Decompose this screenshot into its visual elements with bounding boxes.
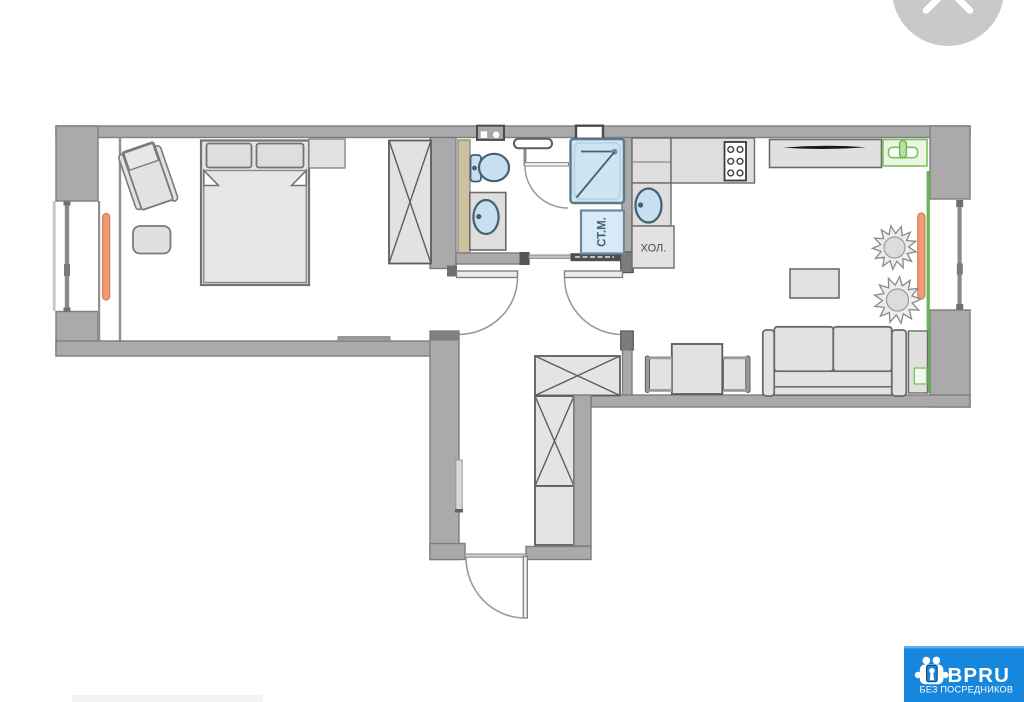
svg-text:ХОЛ.: ХОЛ. <box>641 243 667 255</box>
svg-text:БЕЗ ПОСРЕДНИКОВ: БЕЗ ПОСРЕДНИКОВ <box>920 685 1014 695</box>
svg-text:СТ.М.: СТ.М. <box>597 217 609 247</box>
